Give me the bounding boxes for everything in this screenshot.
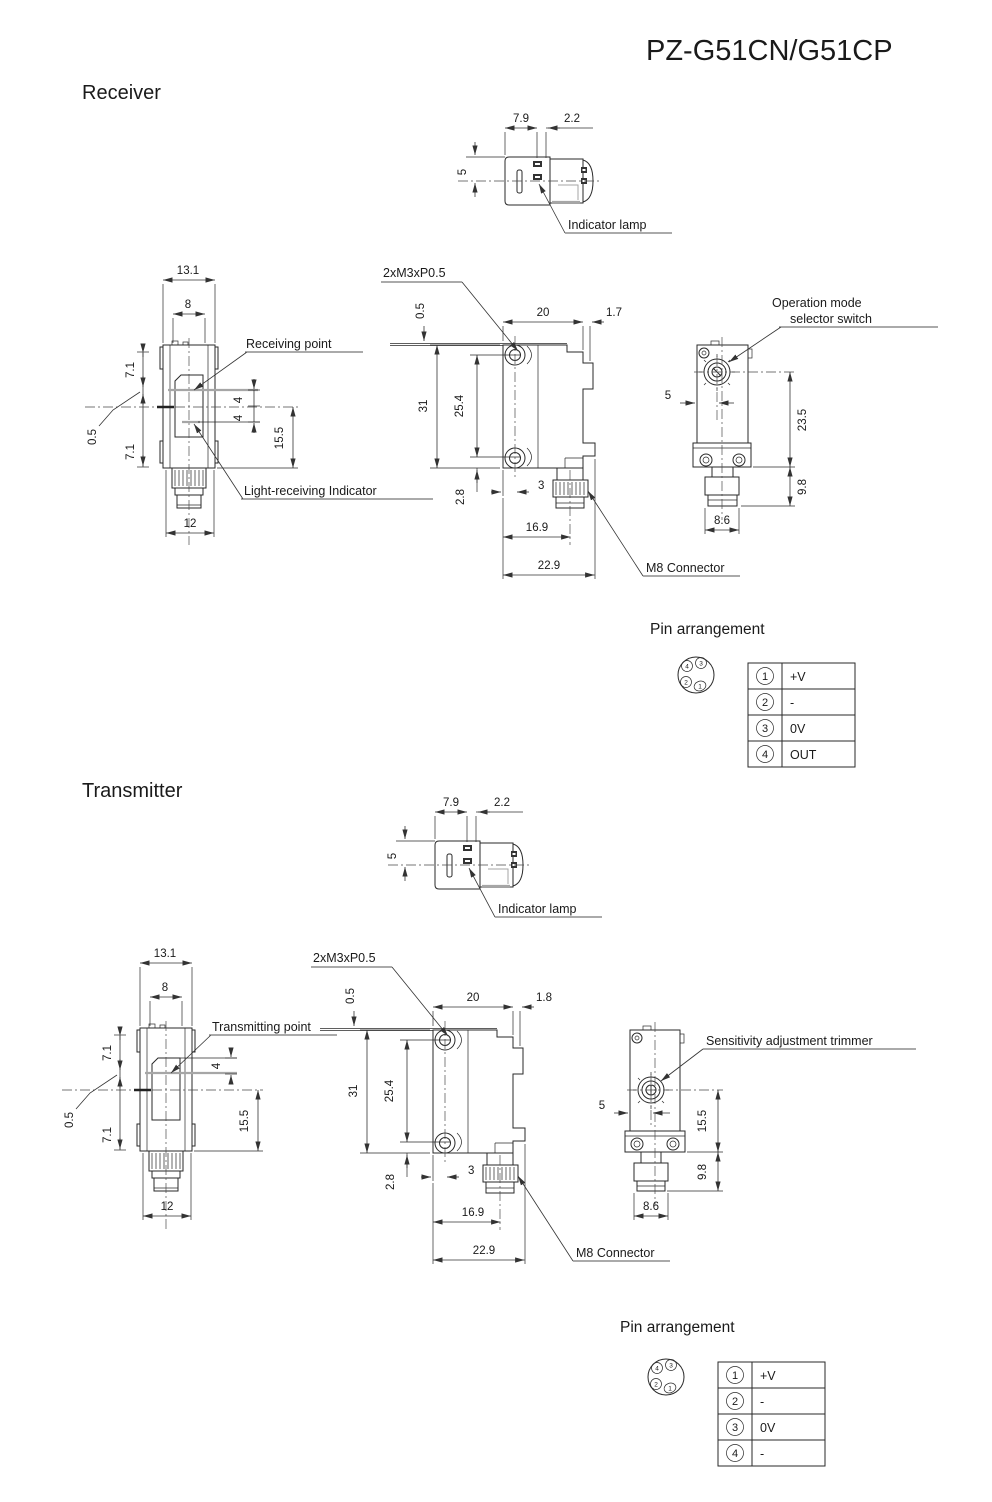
dim-top-79: 7.9: [513, 113, 529, 125]
dim-front-05: 0.5: [87, 429, 99, 445]
t-pin-arrangement-title: Pin arrangement: [620, 1319, 735, 1336]
receiver-heading: Receiver: [82, 82, 161, 104]
dim-front-71b: 7.1: [125, 444, 137, 460]
pin-num-4: 4: [762, 749, 768, 761]
pin-num-1: 1: [762, 671, 768, 683]
t-pin-num-1: 1: [732, 1370, 738, 1382]
dim-side-3: 3: [538, 480, 544, 492]
t-screw-thread-label: 2xM3xP0.5: [313, 951, 376, 965]
receiver-top-view: 7.9 2.2 5 Indicator lamp: [457, 113, 672, 233]
dim-front-71a: 7.1: [125, 362, 137, 378]
dim-side-20: 20: [537, 307, 550, 319]
dim-tside-05: 0.5: [345, 988, 357, 1004]
dim-tside-20: 20: [467, 992, 480, 1004]
plug-pin-1: 1: [698, 684, 702, 691]
dim-tside-229: 22.9: [473, 1245, 495, 1257]
dimension-drawing: PZ-G51CN/G51CP Receiver Transmitter 7.9 …: [0, 0, 992, 1502]
dim-top-22: 2.2: [564, 113, 580, 125]
receiver-rear-view: Operation mode selector switch 5 23.5 9.…: [665, 296, 938, 534]
transmitter-rear-view: Sensitivity adjustment trimmer 5 15.5 9.…: [599, 1022, 916, 1220]
dim-trear-86: 8.6: [643, 1201, 659, 1213]
dim-front-4a: 4: [233, 396, 245, 403]
page-title: PZ-G51CN/G51CP: [646, 35, 893, 67]
m8-connector-label: M8 Connector: [646, 561, 725, 575]
t-pin-num-4: 4: [732, 1448, 738, 1460]
t-plug-pin-2: 2: [654, 1382, 658, 1389]
dim-trear-155: 15.5: [697, 1110, 709, 1132]
t-m8-connector-label: M8 Connector: [576, 1246, 655, 1260]
transmitter-pin-arrangement: Pin arrangement 4 3 2 1 1 2 3 4 +V - 0V …: [620, 1319, 825, 1466]
dim-side-05: 0.5: [415, 303, 427, 319]
dim-top-5: 5: [457, 169, 469, 175]
light-receiving-indicator-label: Light-receiving Indicator: [244, 484, 377, 498]
dim-tside-169: 16.9: [462, 1207, 484, 1219]
transmitter-top-view: 7.9 2.2 5 Indicator lamp: [387, 797, 602, 917]
receiver-front-view: 13.1 8 7.1 7.1 0.5 4 4 15.5 12 Receiving…: [85, 265, 433, 545]
dim-tfront-131: 13.1: [154, 948, 176, 960]
plug-pin-2: 2: [684, 680, 688, 687]
dim-side-254: 25.4: [454, 394, 466, 417]
t-plug-pin-1: 1: [668, 1386, 672, 1393]
dim-front-4b: 4: [233, 414, 245, 421]
dim-tside-31: 31: [348, 1085, 360, 1098]
dim-front-131: 13.1: [177, 265, 199, 277]
pin-val-2: -: [790, 696, 794, 710]
dim-tfront-4: 4: [211, 1062, 223, 1069]
receiver-pin-arrangement: Pin arrangement 4 3 2 1 1 2 3 4 +V - 0V …: [650, 621, 855, 767]
pin-val-1: +V: [790, 670, 806, 684]
receiving-point-label: Receiving point: [246, 337, 332, 351]
dim-rear-86: 8.6: [714, 515, 730, 527]
dim-tside-3: 3: [468, 1165, 474, 1177]
dim-side-28: 2.8: [455, 489, 467, 505]
dim-ttop-5: 5: [387, 853, 399, 859]
t-pin-val-2: -: [760, 1395, 764, 1409]
dim-tfront-12: 12: [161, 1201, 174, 1213]
dim-ttop-22: 2.2: [494, 797, 510, 809]
dim-front-12: 12: [184, 518, 197, 530]
dim-side-31: 31: [418, 400, 430, 413]
dim-side-17: 1.7: [606, 307, 622, 319]
t-indicator-lamp-label: Indicator lamp: [498, 902, 577, 916]
pin-val-4: OUT: [790, 748, 817, 762]
dim-tside-28: 2.8: [385, 1174, 397, 1190]
operation-mode-label-1: Operation mode: [772, 296, 862, 310]
t-pin-val-1: +V: [760, 1369, 776, 1383]
pin-num-3: 3: [762, 723, 768, 735]
transmitter-side-view: 0.5 2xM3xP0.5 20 1.8 31 25.4 2.8 3 16.9 …: [311, 951, 670, 1264]
indicator-lamp-label: Indicator lamp: [568, 218, 647, 232]
dim-tfront-71a: 7.1: [102, 1045, 114, 1061]
transmitter-front-view: 13.1 8 7.1 7.1 0.5 4 15.5 12 Transmittin…: [62, 948, 337, 1232]
pin-num-2: 2: [762, 697, 768, 709]
t-pin-val-3: 0V: [760, 1421, 776, 1435]
dim-front-155: 15.5: [274, 427, 286, 449]
transmitting-point-label: Transmitting point: [212, 1020, 311, 1034]
t-pin-num-2: 2: [732, 1396, 738, 1408]
dim-front-8: 8: [185, 299, 191, 311]
operation-mode-label-2: selector switch: [790, 312, 872, 326]
receiver-side-view: 0.5 2xM3xP0.5 20 1.7 31 25.4 2.8 3 16.9 …: [381, 266, 740, 579]
dim-tfront-71b: 7.1: [102, 1127, 114, 1143]
dim-side-169: 16.9: [526, 522, 548, 534]
dim-ttop-79: 7.9: [443, 797, 459, 809]
dim-rear-98: 9.8: [797, 479, 809, 495]
transmitter-heading: Transmitter: [82, 780, 183, 802]
pin-val-3: 0V: [790, 722, 806, 736]
dim-tfront-155: 15.5: [239, 1110, 251, 1132]
dim-tside-254: 25.4: [384, 1079, 396, 1102]
t-pin-num-3: 3: [732, 1422, 738, 1434]
t-pin-val-4: -: [760, 1447, 764, 1461]
sensitivity-trimmer-label: Sensitivity adjustment trimmer: [706, 1034, 873, 1048]
dim-trear-5: 5: [599, 1100, 605, 1112]
t-plug-pin-4: 4: [655, 1366, 659, 1373]
t-plug-pin-3: 3: [669, 1363, 673, 1370]
dim-rear-5: 5: [665, 390, 671, 402]
dim-tfront-8: 8: [162, 982, 168, 994]
dim-tside-18: 1.8: [536, 992, 552, 1004]
datasheet-page: PZ-G51CN/G51CP Receiver Transmitter 7.9 …: [0, 0, 992, 1502]
screw-thread-label: 2xM3xP0.5: [383, 266, 446, 280]
pin-arrangement-title: Pin arrangement: [650, 621, 765, 638]
dim-trear-98: 9.8: [697, 1164, 709, 1180]
dim-rear-235: 23.5: [797, 409, 809, 431]
plug-pin-3: 3: [699, 661, 703, 668]
plug-pin-4: 4: [685, 664, 689, 671]
dim-side-229: 22.9: [538, 560, 560, 572]
dim-tfront-05: 0.5: [64, 1112, 76, 1128]
